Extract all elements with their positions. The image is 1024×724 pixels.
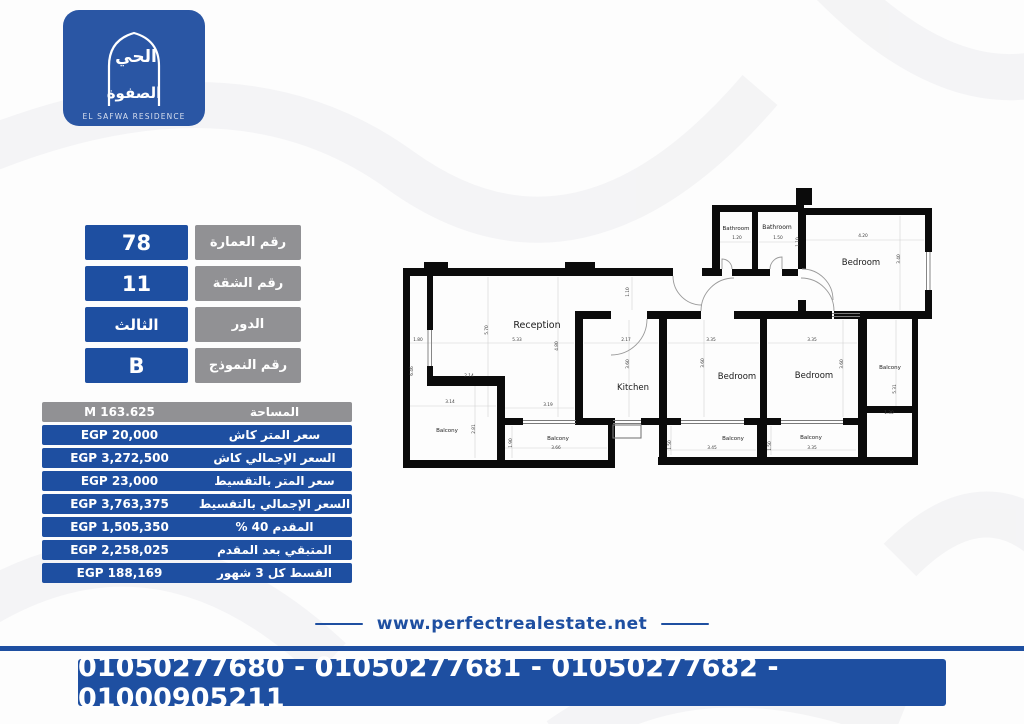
dimension-label: 6.46: [409, 366, 415, 376]
room-label: Balcony: [722, 436, 745, 442]
blue-divider: [0, 646, 1024, 651]
dimension-label: 2.14: [464, 373, 474, 379]
logo-brand-name: EL SAFWA RESIDENCE: [83, 112, 186, 121]
price-row-downpayment: EGP 1,505,350 المقدم 40 %: [42, 517, 352, 537]
dimension-label: 3.35: [807, 445, 817, 451]
logo-arabic-line2: الصفوة: [107, 84, 162, 102]
dimension-label: 3.45: [707, 445, 717, 451]
dimension-label: 1.90: [508, 438, 514, 448]
downpayment-value: EGP 1,505,350: [42, 517, 197, 537]
price-row-meter-installment: EGP 23,000 سعر المتر بالتقسيط: [42, 471, 352, 491]
price-row-quarterly: EGP 188,169 القسط كل 3 شهور: [42, 563, 352, 583]
dimension-label: 4.80: [554, 341, 560, 351]
dimension-label: 3.14: [445, 399, 455, 405]
dimension-label: 2.81: [471, 424, 477, 434]
info-row-apartment: 11 رقم الشقة: [85, 266, 301, 301]
info-row-floor: الثالث الدور: [85, 307, 301, 342]
price-row-total-cash: EGP 3,272,500 السعر الإجمالي كاش: [42, 448, 352, 468]
meter-installment-label: سعر المتر بالتقسيط: [197, 471, 352, 491]
remaining-label: المتبقي بعد المقدم: [197, 540, 352, 560]
dimension-label: 3.66: [551, 445, 561, 451]
dimension-label: 1.80: [413, 337, 423, 343]
price-row-remaining: EGP 2,258,025 المتبقي بعد المقدم: [42, 540, 352, 560]
info-row-building: 78 رقم العمارة: [85, 225, 301, 260]
floor-label: الدور: [195, 307, 301, 342]
quarterly-installment-value: EGP 188,169: [42, 563, 197, 583]
dimension-label: 1.10: [625, 287, 631, 297]
window-notch: [924, 252, 933, 290]
room-label: Balcony: [547, 436, 570, 442]
floor-plan: ReceptionKitchenBedroomBedroomBedroomBat…: [398, 180, 940, 480]
logo-graphic: الحي الصفوة EL SAFWA RESIDENCE: [63, 10, 205, 126]
website-row: www.perfectrealestate.net: [0, 614, 1024, 634]
room-label: Bedroom: [795, 371, 833, 381]
area-label: المساحة: [197, 402, 352, 422]
price-row-area: M 163.625 المساحة: [42, 402, 352, 422]
quarterly-installment-label: القسط كل 3 شهور: [197, 563, 352, 583]
dimension-label: 3.60: [700, 358, 706, 368]
dimension-label: 1.30: [884, 410, 894, 416]
website-url: www.perfectrealestate.net: [377, 614, 648, 634]
price-row-meter-cash: EGP 20,000 سعر المتر كاش: [42, 425, 352, 445]
room-label: Kitchen: [617, 383, 649, 393]
info-row-model: B رقم النموذج: [85, 348, 301, 383]
phone-numbers-bar: 01050277680 - 01050277681 - 01050277682 …: [78, 659, 946, 706]
dimension-label: 1.50: [773, 235, 783, 241]
left-rule: [315, 623, 363, 625]
meter-installment-value: EGP 23,000: [42, 471, 197, 491]
dimension-label: 5.70: [484, 325, 490, 335]
remaining-value: EGP 2,258,025: [42, 540, 197, 560]
total-installment-value: EGP 3,763,375: [42, 494, 197, 514]
floor-value: الثالث: [85, 307, 188, 342]
dimension-label: 1.50: [767, 441, 773, 451]
room-label: Reception: [513, 320, 560, 331]
dimension-label: 3.60: [839, 359, 845, 369]
floorplan-labels: ReceptionKitchenBedroomBedroomBedroomBat…: [409, 224, 902, 451]
total-cash-value: EGP 3,272,500: [42, 448, 197, 468]
room-label: Balcony: [800, 435, 823, 441]
dimension-label: 3.40: [896, 254, 902, 264]
price-row-total-installment: EGP 3,763,375 السعر الإجمالي بالتقسيط: [42, 494, 352, 514]
room-label: Bedroom: [842, 258, 880, 268]
room-label: Bathroom: [762, 224, 792, 231]
building-number-value: 78: [85, 225, 188, 260]
total-cash-label: السعر الإجمالي كاش: [197, 448, 352, 468]
dimension-label: 3.35: [807, 337, 817, 343]
total-installment-label: السعر الإجمالي بالتقسيط: [197, 494, 352, 514]
apartment-number-label: رقم الشقة: [195, 266, 301, 301]
flyer-page: الحي الصفوة EL SAFWA RESIDENCE 78 رقم ال…: [0, 0, 1024, 724]
dimension-label: 1.50: [667, 440, 673, 450]
dimension-label: 3.35: [706, 337, 716, 343]
right-rule: [661, 623, 709, 625]
model-label: رقم النموذج: [195, 348, 301, 383]
floorplan-walls: [403, 188, 932, 468]
dimension-label: 5.33: [512, 337, 522, 343]
dimension-label: 2.17: [621, 337, 631, 343]
area-value: M 163.625: [42, 402, 197, 422]
model-value: B: [85, 348, 188, 383]
dimension-label: 4.20: [858, 233, 868, 239]
room-label: Balcony: [879, 365, 902, 371]
dimension-label: 3.19: [543, 402, 553, 408]
meter-cash-value: EGP 20,000: [42, 425, 197, 445]
meter-cash-label: سعر المتر كاش: [197, 425, 352, 445]
brand-logo: الحي الصفوة EL SAFWA RESIDENCE: [63, 10, 205, 126]
dimension-label: 1.20: [732, 235, 742, 241]
room-label: Bedroom: [718, 372, 756, 382]
dimension-label: 1.10: [795, 237, 801, 247]
building-number-label: رقم العمارة: [195, 225, 301, 260]
room-label: Bathroom: [722, 226, 749, 232]
logo-arabic-line1: الحي: [115, 47, 157, 67]
downpayment-label: المقدم 40 %: [197, 517, 352, 537]
dimension-label: 3.60: [625, 359, 631, 369]
room-label: Balcony: [436, 428, 459, 434]
apartment-number-value: 11: [85, 266, 188, 301]
dimension-label: 5.31: [892, 384, 898, 394]
